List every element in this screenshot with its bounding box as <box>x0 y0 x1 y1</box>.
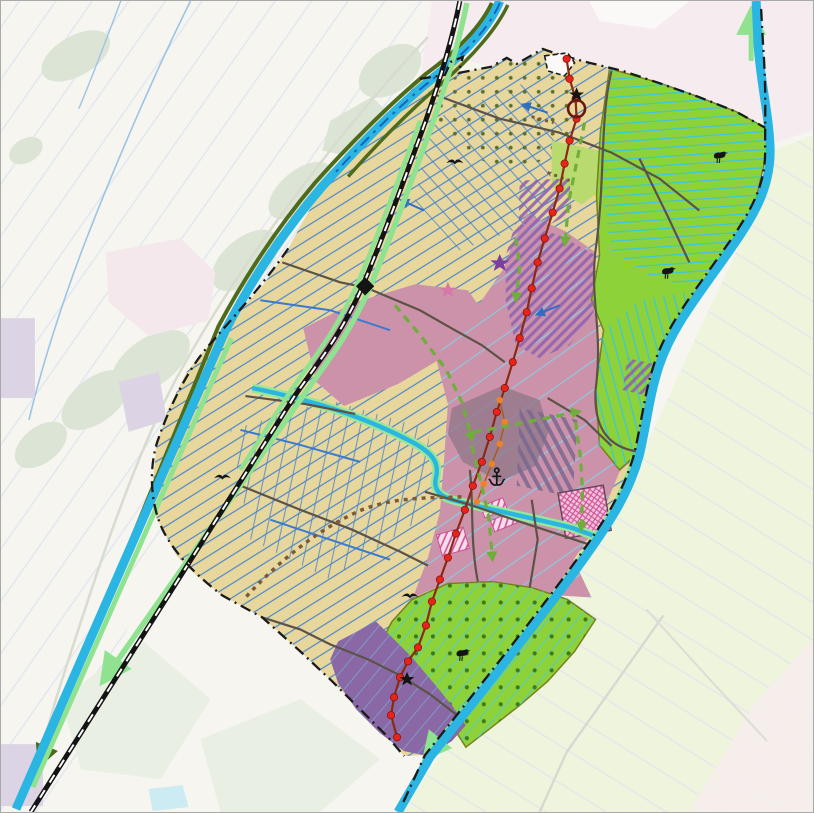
map-canvas[interactable] <box>1 1 813 812</box>
orange-route-dot <box>474 499 480 505</box>
red-route-dot <box>469 482 476 489</box>
red-route-dot <box>390 694 397 701</box>
red-route-dot <box>452 530 459 537</box>
red-route-dot <box>556 185 563 192</box>
red-route-dot <box>422 622 429 629</box>
red-route-dot <box>516 334 523 341</box>
red-route-dot <box>509 358 516 365</box>
orange-route-dot <box>502 419 508 425</box>
red-route-dot <box>404 658 411 665</box>
red-route-dot <box>563 55 570 62</box>
orange-route-dot <box>497 441 503 447</box>
red-route-dot <box>436 576 443 583</box>
red-route-dot <box>566 137 573 144</box>
red-route-dot <box>387 712 394 719</box>
red-route-dot <box>478 458 485 465</box>
red-route-dot <box>541 235 548 242</box>
red-route-dot <box>493 408 500 415</box>
red-route-dot <box>444 554 451 561</box>
red-route-dot <box>528 285 535 292</box>
zone-stripe-bars <box>517 408 578 497</box>
red-route-dot <box>461 506 468 513</box>
orange-route-dot <box>497 397 503 403</box>
red-route-dot <box>486 433 493 440</box>
red-route-dot <box>523 309 530 316</box>
red-route-dot <box>549 209 556 216</box>
orange-route-dot <box>481 481 487 487</box>
patch-lavender-1 <box>1 318 35 398</box>
red-route-dot <box>501 384 508 391</box>
red-route-dot <box>534 259 541 266</box>
map-frame <box>0 0 814 813</box>
red-route-dot <box>561 160 568 167</box>
red-route-dot <box>393 733 400 740</box>
patch-cyan-blob <box>149 785 189 811</box>
red-route-dot <box>428 598 435 605</box>
red-route-dot <box>414 644 421 651</box>
orange-route-dot <box>489 461 495 467</box>
red-route-dot <box>566 75 573 82</box>
